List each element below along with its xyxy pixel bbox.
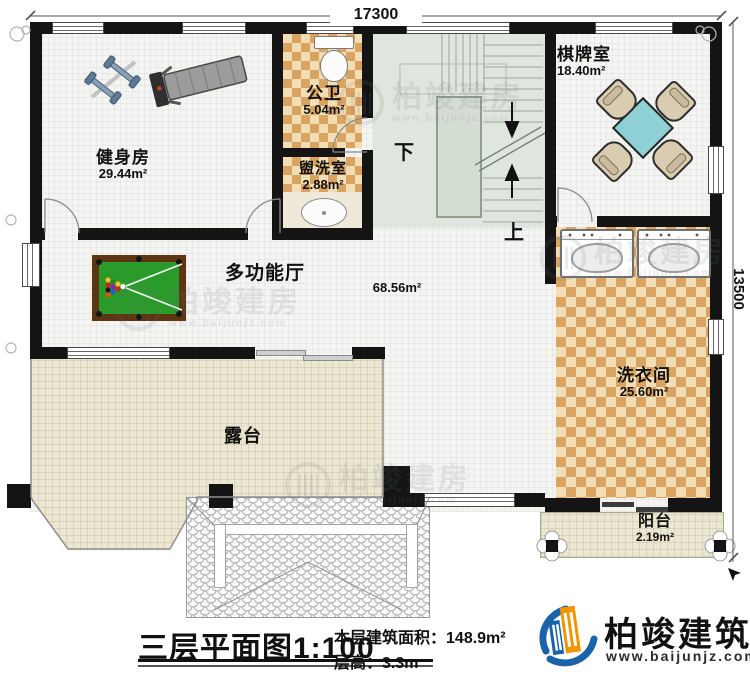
wall-stairs-right bbox=[545, 22, 556, 227]
window bbox=[182, 22, 246, 34]
room-area: 25.60m² bbox=[596, 385, 692, 400]
wall-bath-right-lower bbox=[362, 150, 373, 240]
wall-hall-bottom-1 bbox=[30, 347, 67, 359]
pool-table bbox=[92, 255, 186, 321]
wall-gym-bottom-3 bbox=[282, 228, 373, 240]
room-name: 阳台 bbox=[614, 513, 696, 531]
room-name: 露台 bbox=[198, 426, 288, 446]
roof-walkway-band-right bbox=[406, 524, 418, 588]
dimension-right: 13500 bbox=[729, 257, 747, 321]
wall-chess-bottom-1 bbox=[545, 216, 557, 227]
room-name: 洗衣间 bbox=[596, 366, 692, 385]
wall-bath-divider bbox=[283, 148, 345, 157]
stair-landing bbox=[436, 96, 482, 218]
wall-gym-bottom-2 bbox=[78, 228, 248, 240]
wall-laundry-left bbox=[545, 227, 556, 284]
room-label-laundry: 洗衣间 25.60m² bbox=[596, 366, 692, 400]
room-label-washroom: 盥洗室 2.88m² bbox=[283, 161, 363, 192]
roof-walkway-band-left bbox=[214, 524, 226, 588]
washer-drum bbox=[648, 243, 700, 273]
room-label-gym: 健身房 29.44m² bbox=[77, 148, 169, 182]
floor-area-value: 148.9m² bbox=[446, 630, 506, 647]
room-name: 健身房 bbox=[77, 148, 169, 167]
wall-gym-bottom-1 bbox=[30, 228, 45, 240]
wall-bath-right-upper bbox=[362, 22, 373, 118]
room-area: 29.44m² bbox=[77, 167, 169, 182]
window bbox=[67, 347, 170, 359]
window bbox=[52, 22, 104, 34]
roof-walkway-band-top bbox=[214, 524, 418, 535]
toilet-icon bbox=[314, 36, 354, 49]
room-area: 2.88m² bbox=[283, 178, 363, 193]
window bbox=[22, 243, 40, 287]
wall-right bbox=[710, 22, 722, 512]
floor-height-value: 3.3m bbox=[382, 655, 418, 672]
room-name: 公卫 bbox=[286, 84, 362, 103]
room-label-terrace: 露台 bbox=[198, 426, 288, 446]
room-name: 棋牌室 bbox=[557, 45, 649, 64]
window bbox=[424, 493, 515, 507]
room-area: 5.04m² bbox=[286, 103, 362, 118]
room-area: 18.40m² bbox=[557, 64, 649, 79]
floor-height-text: 层高：3.3m bbox=[334, 649, 418, 673]
washer-control-panel bbox=[562, 231, 632, 240]
sliding-door bbox=[256, 350, 306, 356]
wall-laundry-bottom-2 bbox=[668, 498, 722, 512]
washer-drum bbox=[571, 243, 623, 273]
cursor-icon bbox=[728, 568, 741, 581]
floor-height-label: 层高： bbox=[334, 655, 382, 672]
washer-control-panel bbox=[639, 231, 709, 240]
dimension-top: 17300 bbox=[330, 6, 422, 26]
room-name: 多功能厅 bbox=[200, 263, 330, 284]
room-label-balcony: 阳台 2.19m² bbox=[614, 513, 696, 544]
window bbox=[595, 22, 673, 34]
brand-logo-icon bbox=[536, 601, 598, 667]
window bbox=[708, 319, 724, 355]
floor-area-label: 本层建筑面积： bbox=[334, 630, 446, 647]
wall-left bbox=[30, 22, 42, 359]
sliding-door bbox=[303, 355, 353, 361]
wall-corridor-bottom-2 bbox=[515, 493, 545, 507]
wall-laundry-bottom-1 bbox=[545, 498, 600, 512]
room-label-public-bathroom: 公卫 5.04m² bbox=[286, 84, 362, 118]
room-area: 68.56m² bbox=[362, 281, 432, 296]
window bbox=[708, 146, 724, 194]
terrace-column-right bbox=[209, 484, 233, 508]
brand-website: www.baijunjz.com bbox=[606, 648, 750, 664]
wall-hall-bottom-2 bbox=[170, 347, 255, 359]
washing-machine bbox=[637, 229, 711, 278]
sliding-door bbox=[636, 507, 668, 512]
washing-machine bbox=[560, 229, 634, 278]
wall-gym-right bbox=[272, 22, 283, 240]
wall-chess-bottom-2 bbox=[597, 216, 722, 227]
room-area-multi-hall: 68.56m² bbox=[362, 281, 432, 296]
room-name: 盥洗室 bbox=[283, 161, 363, 178]
stairs-up-label: 上 bbox=[504, 216, 524, 245]
floor-plan-canvas: 柏竣建房 www.baijunjz.com 柏竣建房 www.baijunjz.… bbox=[0, 0, 750, 677]
room-area: 2.19m² bbox=[614, 531, 696, 544]
corridor-column bbox=[383, 466, 410, 506]
sliding-door bbox=[602, 502, 634, 507]
terrace-column-left bbox=[7, 484, 31, 508]
floor-area-text: 本层建筑面积：148.9m² bbox=[334, 624, 506, 648]
stairs-down-label: 下 bbox=[394, 136, 414, 165]
room-label-chess-room: 棋牌室 18.40m² bbox=[557, 45, 649, 79]
toilet-bowl-icon bbox=[320, 50, 348, 82]
wall-hall-bottom-3 bbox=[352, 347, 385, 359]
sink-drain-icon bbox=[322, 211, 326, 215]
room-label-multi-hall: 多功能厅 bbox=[200, 263, 330, 284]
